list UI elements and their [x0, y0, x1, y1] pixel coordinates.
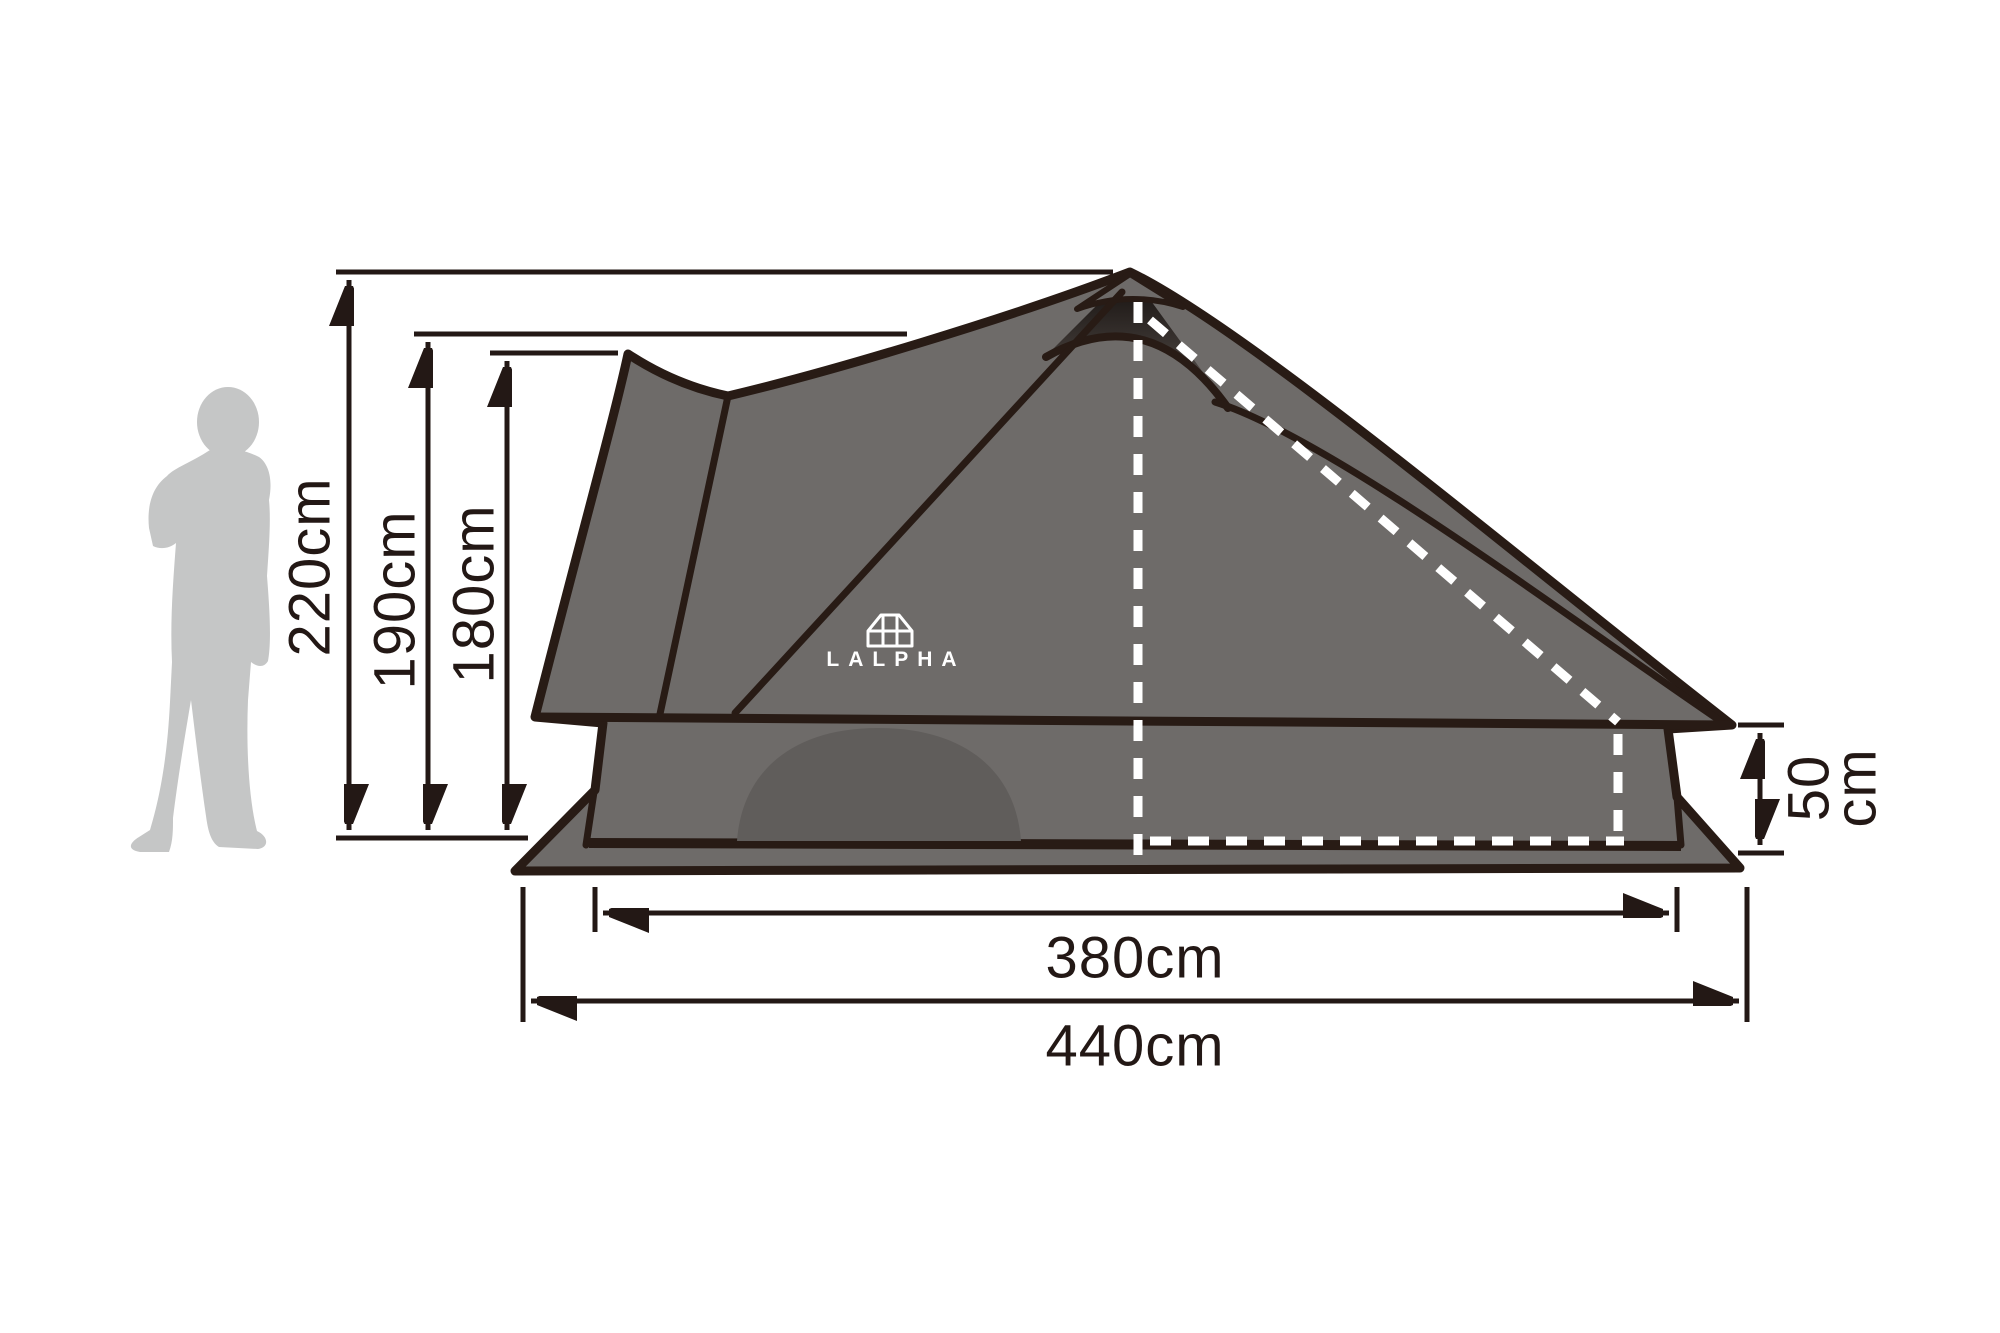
human-body	[131, 448, 271, 852]
dim-label-380: 380cm	[1045, 926, 1224, 991]
dim-label-440: 440cm	[1045, 1014, 1224, 1079]
dim-label-220: 220cm	[278, 477, 343, 656]
tent-illustration: LALPHA	[515, 272, 1740, 871]
dim-label-50-unit: cm	[1824, 748, 1889, 827]
human-head	[197, 387, 259, 457]
brand-logo-text: LALPHA	[826, 648, 965, 671]
tent-body	[515, 272, 1740, 871]
seam-right-skirt-crease	[1677, 797, 1681, 845]
human-silhouette	[131, 387, 271, 852]
tent-spec-diagram: LALPHA	[0, 0, 2000, 1333]
dim-label-180: 180cm	[442, 504, 507, 683]
dim-label-190: 190cm	[363, 510, 428, 689]
diagram-canvas: LALPHA	[0, 0, 2000, 1333]
